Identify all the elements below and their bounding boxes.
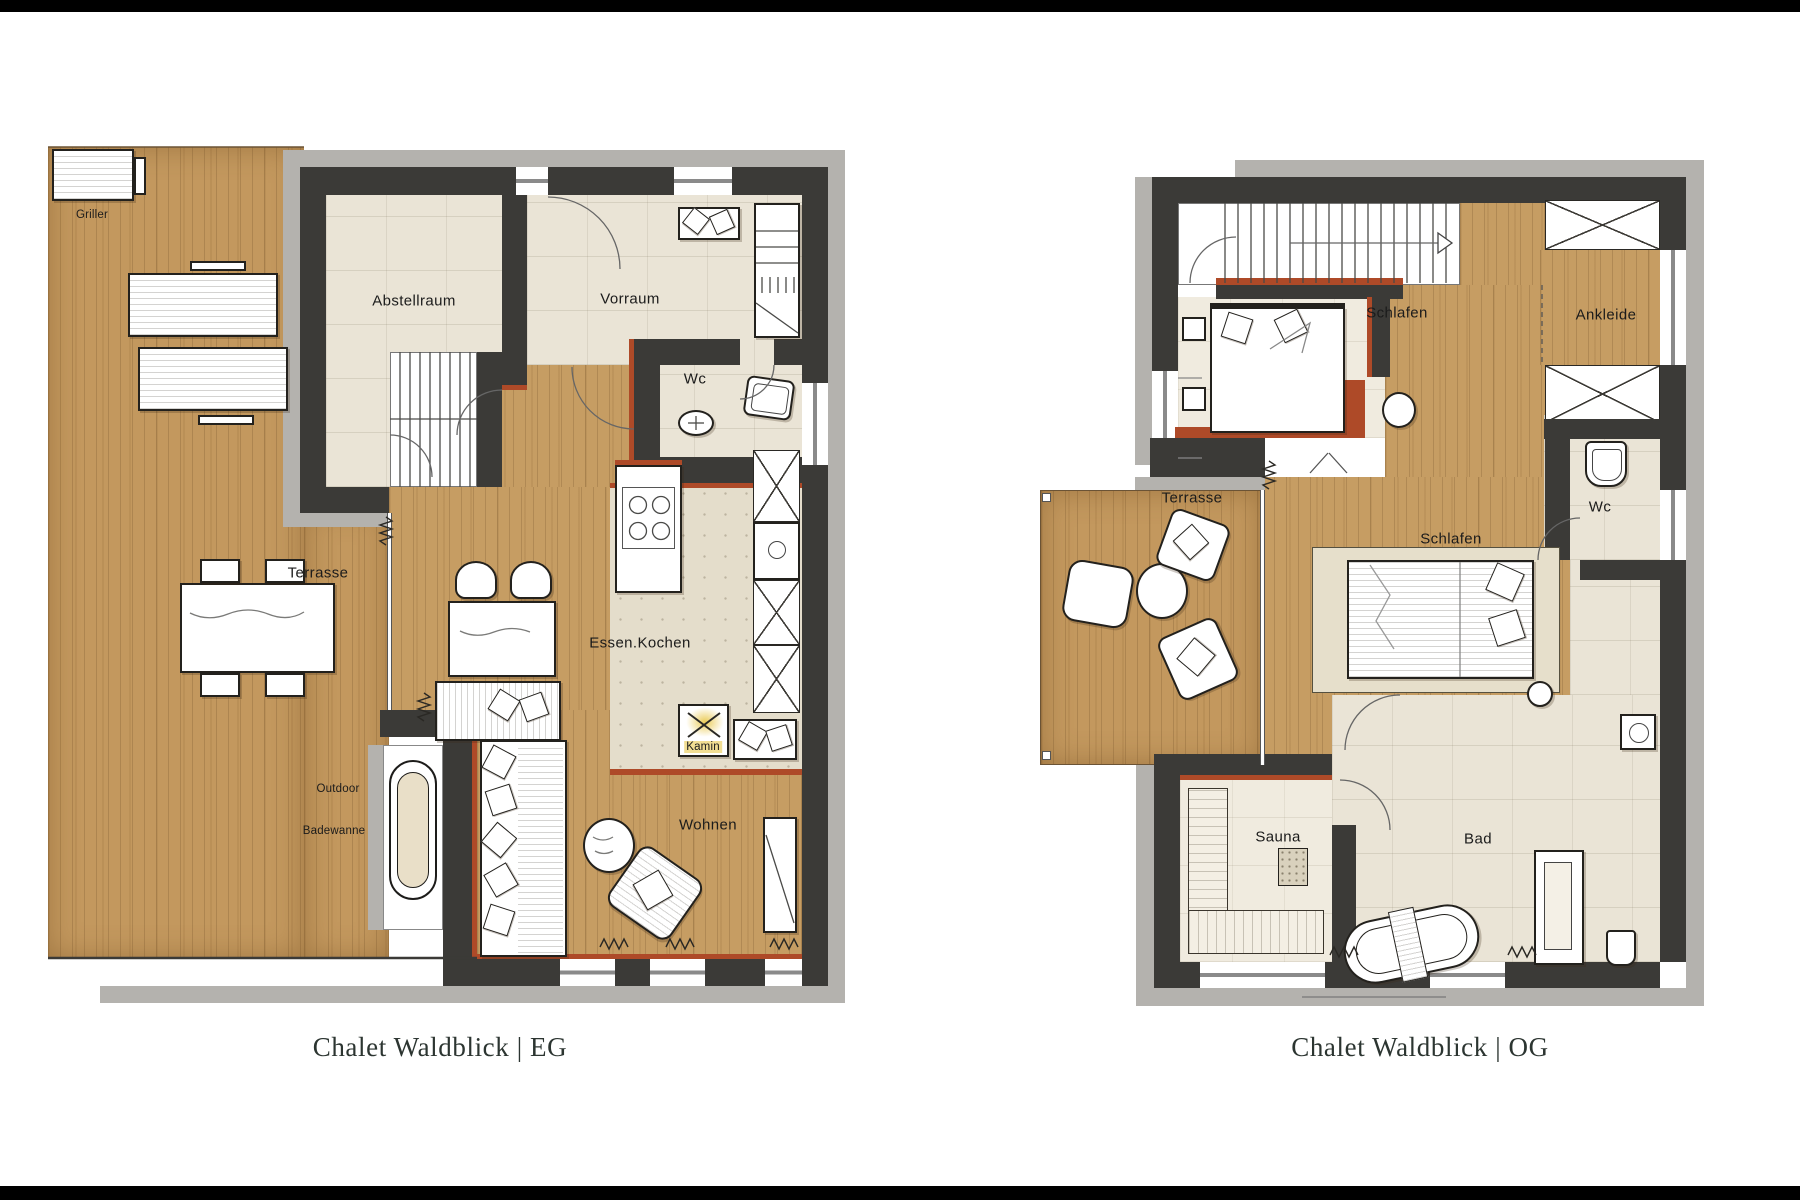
eg-stairs-floor: [390, 352, 477, 487]
eg-outer-band-top: [283, 150, 845, 167]
og-label-bad: Bad: [1464, 831, 1492, 848]
og-sauna-bench-south: [1188, 910, 1324, 954]
og-caption: Chalet Waldblick | OG: [1060, 1032, 1780, 1063]
eg-tv-sideboard: [763, 817, 797, 933]
eg-label-essen-kochen: Essen.Kochen: [589, 635, 691, 652]
eg-wall-right-2: [802, 465, 828, 986]
eg-outdoor-tub-inner: [397, 772, 429, 888]
eg-rust-living-west: [472, 710, 477, 959]
eg-wall-right-1: [802, 167, 828, 383]
og-wall-bottom-3: [1505, 962, 1660, 988]
eg-tall-cabinet-3: [753, 580, 800, 645]
eg-terrace-deck: [48, 147, 304, 958]
eg-lounger-side-table-2: [198, 415, 254, 425]
eg-cooktop: [622, 487, 675, 549]
og-vanity-basin: [1544, 862, 1572, 950]
og-terrace-post-2: [1042, 751, 1051, 760]
og-wardrobe-xbox-1: [1545, 200, 1660, 250]
eg-sun-lounger-2: [138, 347, 288, 411]
eg-wall-bottom-2: [615, 959, 650, 986]
og-outer-band-right: [1686, 160, 1704, 1006]
eg-label-wc: Wc: [684, 371, 706, 388]
og-bad-sink-circle: [1629, 723, 1649, 743]
eg-window-right: [802, 383, 828, 465]
eg-wall-wc-north-2: [774, 339, 802, 365]
eg-window-bottom-2: [650, 959, 705, 986]
og-wardrobe-xbox-2: [1545, 365, 1660, 423]
eg-wall-bottom-3: [705, 959, 765, 986]
og-round-table-nook: [1382, 392, 1416, 428]
eg-outdoor-chair-3: [200, 673, 240, 697]
eg-kamin-glow: [686, 707, 724, 737]
og-rust-sauna-north: [1180, 775, 1332, 780]
floorplan-eg: Griller Terrasse Abstellraum Vorraum Wc …: [40, 135, 840, 1015]
eg-wall-bottom-1: [477, 959, 560, 986]
eg-dining-table: [448, 601, 556, 677]
eg-wall-stairs-corridor: [477, 352, 502, 487]
floorplan-og: Schlafen Ankleide Schlafen Wc Terrasse S…: [1040, 135, 1760, 1015]
og-outer-band-top: [1235, 160, 1704, 177]
eg-rust-divider-tip: [502, 385, 527, 390]
og-wall-left-1: [1152, 203, 1178, 371]
eg-lounger-side-table-1: [190, 261, 246, 271]
eg-outer-band-right: [828, 150, 845, 1003]
og-rust-bed1-east: [1345, 380, 1365, 438]
og-label-sauna: Sauna: [1255, 829, 1300, 846]
og-wall-right-1: [1660, 203, 1686, 250]
eg-tub-side-band: [368, 745, 383, 930]
og-window-right-2: [1660, 490, 1686, 560]
eg-outer-band-bottom: [100, 986, 845, 1003]
og-outer-band-bottom: [1136, 988, 1704, 1006]
eg-wall-stairs-south: [300, 487, 389, 513]
eg-sofa-seat: [518, 744, 563, 953]
og-wall-bottom-1: [1154, 962, 1200, 988]
og-wall-sauna-west: [1154, 780, 1180, 962]
og-bed2-stool: [1527, 681, 1553, 707]
og-label-wc: Wc: [1589, 499, 1611, 516]
og-bed1-headboard: [1210, 303, 1345, 308]
eg-label-wohnen: Wohnen: [679, 817, 737, 834]
eg-window-top-1: [516, 167, 548, 195]
og-wc-toilet-inner: [1592, 449, 1622, 481]
eg-tall-cabinet-4: [753, 645, 800, 713]
eg-wall-divider-abst-vorraum: [502, 195, 527, 390]
og-corridor-floor-upper: [1460, 203, 1545, 285]
eg-rust-island-top: [615, 460, 682, 465]
eg-wall-left: [300, 167, 326, 487]
og-stairs-floor: [1178, 203, 1460, 285]
og-step-bedroom1-south: [1135, 477, 1265, 490]
og-label-terrasse: Terrasse: [1162, 490, 1223, 507]
eg-label-abstellraum: Abstellraum: [372, 293, 456, 310]
letterbox-top: [0, 0, 1800, 12]
eg-wall-top-1: [300, 167, 516, 195]
eg-wc-shower-inner: [750, 383, 790, 416]
eg-label-griller: Griller: [76, 209, 108, 221]
og-wall-wc-south: [1580, 560, 1660, 580]
eg-tall-cabinet-1: [753, 450, 800, 522]
eg-wall-top-2: [548, 167, 674, 195]
eg-glazing-terrace: [387, 513, 392, 710]
eg-wall-wc-north-1: [660, 339, 740, 365]
og-wall-wc-west: [1545, 423, 1570, 560]
og-label-schlafen-1: Schlafen: [1366, 305, 1428, 322]
og-wall-right-3: [1660, 560, 1686, 962]
og-nightstand-2: [1182, 387, 1206, 411]
og-nightstand-1: [1182, 317, 1206, 341]
og-label-schlafen-2: Schlafen: [1420, 531, 1482, 548]
eg-dining-table-outdoor: [180, 583, 335, 673]
eg-griller: [52, 149, 134, 201]
eg-label-vorraum: Vorraum: [600, 291, 660, 308]
eg-window-bottom-1: [560, 959, 615, 986]
eg-label-outdoor: Outdoor: [317, 783, 360, 795]
eg-griller-side-shelf: [134, 157, 146, 195]
og-terrace-pouf-1: [1060, 558, 1136, 631]
eg-wall-top-3: [732, 167, 802, 195]
eg-outdoor-chair-1: [200, 559, 240, 583]
og-wallhung-wc: [1606, 930, 1636, 966]
eg-kitchen-sink-circle: [768, 541, 786, 559]
eg-outer-band-sw-step: [283, 513, 389, 527]
eg-window-bottom-3: [765, 959, 802, 986]
og-window-right-1: [1660, 250, 1686, 365]
og-window-bottom-1: [1200, 962, 1325, 988]
og-sauna-heater: [1278, 848, 1308, 886]
og-outer-band-sauna-west: [1136, 765, 1154, 988]
og-glazing-terrace: [1260, 490, 1265, 765]
og-outer-band-left: [1135, 177, 1152, 465]
og-wall-bed1-south: [1150, 438, 1265, 477]
eg-wc-washbasin: [678, 410, 714, 436]
eg-sun-lounger-1: [128, 273, 278, 337]
og-bad-floor-east: [1570, 560, 1660, 695]
eg-label-terrasse: Terrasse: [288, 565, 349, 582]
og-rust-stairs-south: [1216, 278, 1403, 285]
eg-wardrobe: [754, 203, 800, 338]
og-wall-right-2: [1660, 365, 1686, 490]
eg-label-kamin: Kamin: [684, 741, 722, 753]
eg-dining-chair-2: [510, 561, 552, 599]
letterbox-bottom: [0, 1186, 1800, 1200]
eg-outer-band-left: [283, 167, 300, 513]
eg-window-top-2: [674, 167, 732, 195]
eg-label-badewanne: Badewanne: [303, 825, 366, 837]
og-label-ankleide: Ankleide: [1576, 307, 1637, 324]
eg-rust-kitchen-south: [610, 769, 802, 775]
eg-dining-chair-1: [455, 561, 497, 599]
eg-outdoor-chair-4: [265, 673, 305, 697]
eg-caption: Chalet Waldblick | EG: [40, 1032, 840, 1063]
og-terrace-post-1: [1042, 493, 1051, 502]
